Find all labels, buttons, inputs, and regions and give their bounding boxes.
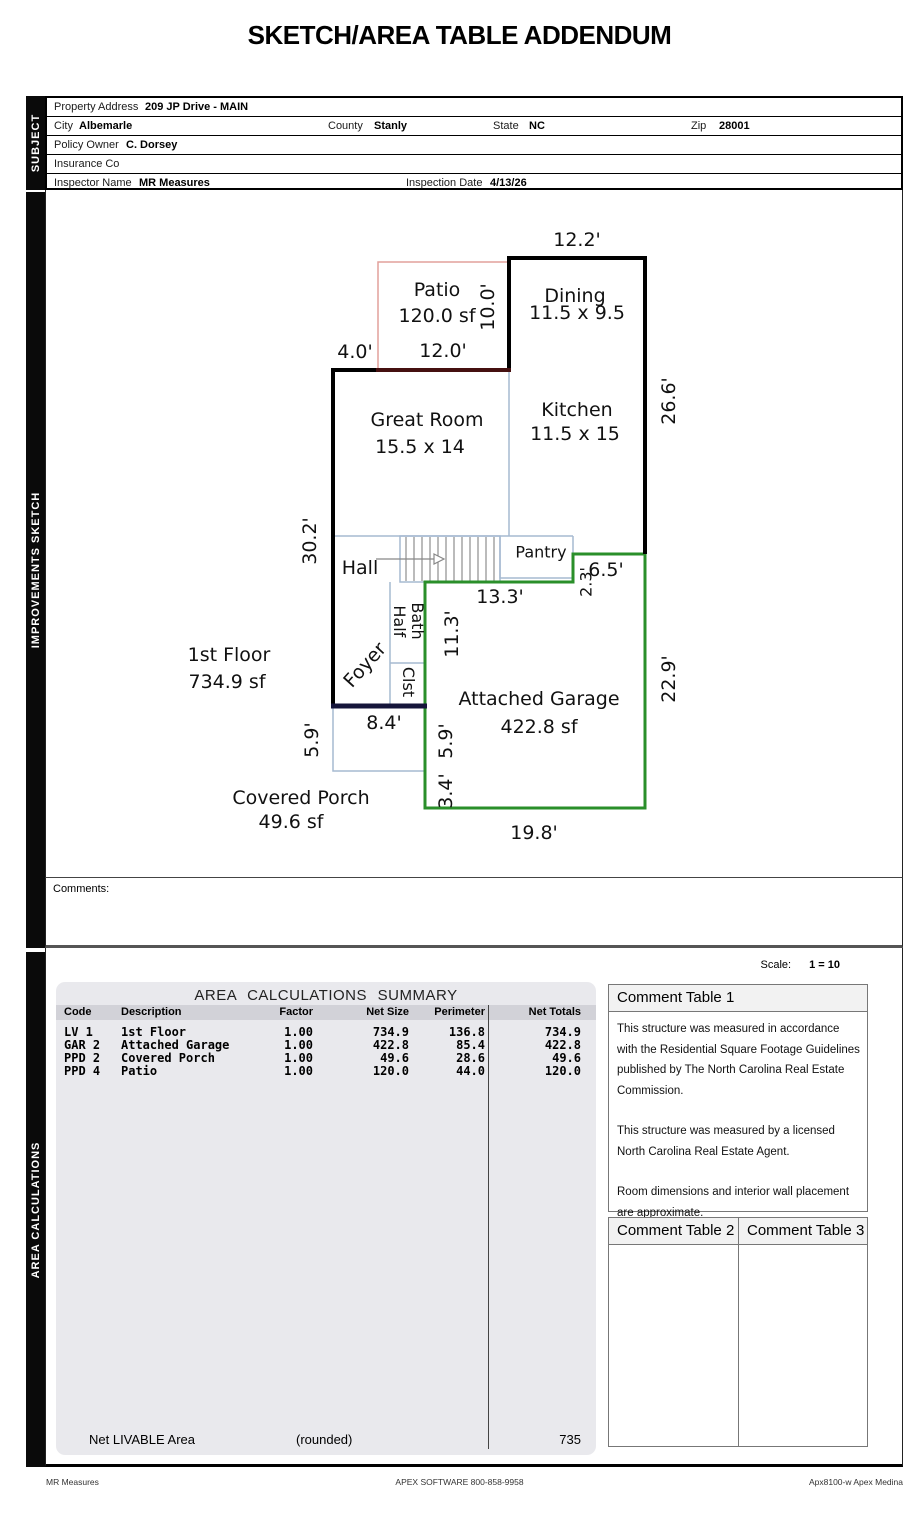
- dim-porch-width: 8.4': [366, 712, 401, 734]
- row-net-size: 734.9: [349, 1025, 409, 1039]
- property-address-label: Property Address: [54, 101, 138, 113]
- dim-great-room-top: 4.0': [337, 341, 372, 363]
- row-code: PPD 4: [64, 1064, 100, 1078]
- comments-label: Comments:: [53, 883, 109, 895]
- policy-owner-row: Policy Owner C. Dorsey: [47, 136, 901, 155]
- dim-left-wall: 30.2': [299, 517, 321, 565]
- dim-porch-height: 5.9': [301, 722, 323, 757]
- size-label-kitchen: 11.5 x 15: [530, 423, 620, 445]
- area-label-first-floor: 734.9 sf: [188, 671, 265, 693]
- area-label-patio: 120.0 sf: [398, 305, 475, 327]
- state-label: State: [493, 120, 519, 132]
- section-bar-subject-label: SUBJECT: [30, 114, 42, 172]
- section-bar-improvements-sketch: IMPROVEMENTS SKETCH: [26, 192, 46, 948]
- policy-owner-value: C. Dorsey: [126, 139, 177, 151]
- row-net-size: 422.8: [349, 1038, 409, 1052]
- row-description: Covered Porch: [121, 1051, 215, 1065]
- comment-table-3-title: Comment Table 3: [739, 1218, 867, 1245]
- room-label-covered-porch: Covered Porch: [232, 787, 369, 809]
- header-net-size: Net Size: [349, 1006, 409, 1018]
- floor-plan: 12.2' Patio 120.0 sf 10.0' Dining 11.5 x…: [46, 192, 905, 877]
- room-label-kitchen: Kitchen: [541, 399, 612, 421]
- policy-owner-label: Policy Owner: [54, 139, 119, 151]
- subject-info-table: Property Address 209 JP Drive - MAIN Cit…: [45, 96, 903, 190]
- dim-garage-left-mid: 5.9': [435, 723, 457, 758]
- property-address-row: Property Address 209 JP Drive - MAIN: [47, 98, 901, 117]
- comment-table-3: Comment Table 3: [738, 1217, 868, 1447]
- table-row: LV 1 1st Floor 1.00 734.9 136.8 734.9: [56, 1025, 596, 1038]
- row-net-total: 49.6: [504, 1051, 581, 1065]
- room-label-great-room: Great Room: [370, 409, 483, 431]
- room-label-patio: Patio: [414, 279, 461, 301]
- row-net-total: 422.8: [504, 1038, 581, 1052]
- net-livable-rounded-note: (rounded): [296, 1432, 352, 1447]
- sketch-area-addendum-page: { "title": "SKETCH/AREA TABLE ADDENDUM",…: [0, 0, 919, 1536]
- county-label: County: [328, 120, 363, 132]
- row-code: PPD 2: [64, 1051, 100, 1065]
- size-label-great-room: 15.5 x 14: [375, 436, 465, 458]
- county-value: Stanly: [374, 120, 407, 132]
- row-perimeter: 85.4: [425, 1038, 485, 1052]
- comment-table-2-title: Comment Table 2: [609, 1218, 738, 1245]
- dim-garage-left-lower: 3.4': [435, 773, 457, 808]
- row-perimeter: 44.0: [425, 1064, 485, 1078]
- header-description: Description: [121, 1006, 182, 1018]
- city-county-state-zip-row: City Albemarle County Stanly State NC Zi…: [47, 117, 901, 136]
- area-table-rows: LV 1 1st Floor 1.00 734.9 136.8 734.9 GA…: [56, 1025, 596, 1077]
- row-perimeter: 28.6: [425, 1051, 485, 1065]
- footer-right: Apx8100-w Apex Medina: [740, 1477, 903, 1487]
- inspection-date-label: Inspection Date: [406, 177, 482, 189]
- inspector-name-label: Inspector Name: [54, 177, 132, 189]
- scale-line: Scale:1 = 10: [761, 959, 840, 971]
- row-net-size: 120.0: [349, 1064, 409, 1078]
- inspection-date-value: 4/13/26: [490, 177, 527, 189]
- net-livable-label: Net LIVABLE Area: [89, 1432, 195, 1447]
- page-title: SKETCH/AREA TABLE ADDENDUM: [0, 20, 919, 51]
- dim-garage-left-upper: 11.3': [441, 610, 463, 658]
- area-calculations-summary-table: AREA CALCULATIONS SUMMARY Code Descripti…: [56, 982, 596, 1455]
- room-label-hall: Hall: [342, 557, 379, 579]
- row-description: Attached Garage: [121, 1038, 229, 1052]
- section-bar-subject: SUBJECT: [26, 96, 46, 190]
- scale-label: Scale:: [761, 959, 792, 971]
- row-perimeter: 136.8: [425, 1025, 485, 1039]
- comment-table-2: Comment Table 2: [608, 1217, 739, 1447]
- dim-stairs-width: 13.3': [476, 586, 524, 608]
- row-net-total: 120.0: [504, 1064, 581, 1078]
- dim-right-upper: 26.6': [658, 377, 680, 425]
- header-factor: Factor: [253, 1006, 313, 1018]
- room-label-pantry: Pantry: [515, 543, 566, 562]
- area-table-header-row: Code Description Factor Net Size Perimet…: [56, 1005, 596, 1020]
- row-net-total: 734.9: [504, 1025, 581, 1039]
- row-net-size: 49.6: [349, 1051, 409, 1065]
- comment-paragraph: This structure was measured in accordanc…: [617, 1019, 861, 1101]
- garage-wall: [425, 554, 645, 808]
- property-address-value: 209 JP Drive - MAIN: [145, 101, 248, 113]
- area-label-garage: 422.8 sf: [500, 716, 577, 738]
- floor-plan-walls: [46, 192, 905, 877]
- zip-value: 28001: [719, 120, 750, 132]
- header-code: Code: [64, 1006, 92, 1018]
- section-bar-area-calculations: AREA CALCULATIONS: [26, 952, 46, 1467]
- room-label-closet: Clst: [399, 667, 417, 697]
- comment-table-1: Comment Table 1 This structure was measu…: [608, 984, 868, 1212]
- comment-table-1-title: Comment Table 1: [609, 985, 867, 1012]
- area-calculations-section: Scale:1 = 10 AREA CALCULATIONS SUMMARY C…: [45, 948, 903, 1467]
- row-factor: 1.00: [253, 1064, 313, 1078]
- row-factor: 1.00: [253, 1038, 313, 1052]
- size-label-dining: 11.5 x 9.5: [529, 302, 625, 324]
- net-livable-value: 735: [504, 1432, 581, 1447]
- room-label-garage: Attached Garage: [458, 688, 619, 710]
- header-perimeter: Perimeter: [425, 1006, 485, 1018]
- table-row: PPD 2 Covered Porch 1.00 49.6 28.6 49.6: [56, 1051, 596, 1064]
- room-label-first-floor: 1st Floor: [188, 644, 271, 666]
- city-value: Albemarle: [79, 120, 132, 132]
- row-factor: 1.00: [253, 1025, 313, 1039]
- zip-label: Zip: [691, 120, 706, 132]
- section-bar-improvements-sketch-label: IMPROVEMENTS SKETCH: [30, 492, 42, 649]
- comment-paragraph: This structure was measured by a license…: [617, 1121, 861, 1162]
- area-table-title: AREA CALCULATIONS SUMMARY: [56, 987, 596, 1004]
- city-label: City: [54, 120, 73, 132]
- row-factor: 1.00: [253, 1051, 313, 1065]
- dim-garage-bottom: 19.8': [510, 822, 558, 844]
- room-label-half-bath: Half Bath: [390, 602, 426, 639]
- scale-value: 1 = 10: [809, 959, 840, 971]
- insurance-row: Insurance Co: [47, 155, 901, 174]
- dim-garage-right: 22.9': [658, 655, 680, 703]
- area-label-covered-porch: 49.6 sf: [259, 811, 324, 833]
- table-row: PPD 4 Patio 1.00 120.0 44.0 120.0: [56, 1064, 596, 1077]
- row-code: GAR 2: [64, 1038, 100, 1052]
- header-net-totals: Net Totals: [511, 1006, 581, 1018]
- dim-patio-height: 10.0': [477, 283, 499, 331]
- insurance-label: Insurance Co: [54, 158, 119, 170]
- stairs-direction-arrow-icon: [376, 554, 444, 564]
- dim-dining-width: 12.2': [553, 229, 601, 251]
- row-description: Patio: [121, 1064, 157, 1078]
- dim-garage-top: 6.5': [588, 559, 623, 581]
- state-value: NC: [529, 120, 545, 132]
- table-row: GAR 2 Attached Garage 1.00 422.8 85.4 42…: [56, 1038, 596, 1051]
- inspector-name-value: MR Measures: [139, 177, 210, 189]
- section-bar-area-calculations-label: AREA CALCULATIONS: [30, 1141, 42, 1278]
- dim-patio-width: 12.0': [419, 340, 467, 362]
- row-code: LV 1: [64, 1025, 93, 1039]
- row-description: 1st Floor: [121, 1025, 186, 1039]
- comments-box: Comments:: [45, 877, 903, 948]
- comment-table-1-body: This structure was measured in accordanc…: [609, 1012, 867, 1223]
